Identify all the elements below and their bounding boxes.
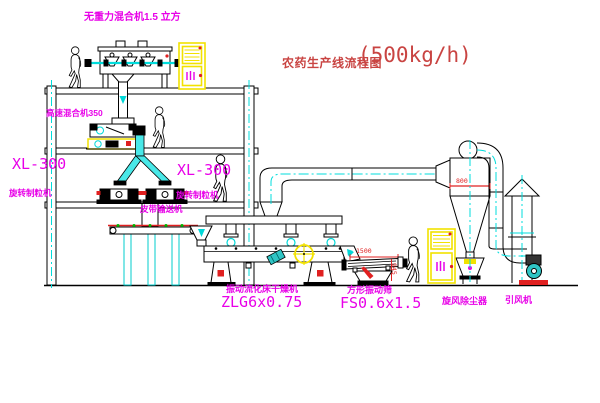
process-flow-drawing: 农药生产线流程图 (500kg/h) 无重力混合机1.5 立方 高速混合机350… [0, 0, 600, 403]
label-belt-conveyor: 皮带输送机 [140, 205, 183, 214]
exhaust-duct [260, 160, 450, 204]
label-granulator-left-name: 旋转制粒机 [9, 189, 52, 198]
label-granulator-mid-name: 旋转制粒机 [176, 191, 219, 200]
label-gravity-free-mixer: 无重力混合机1.5 立方 [84, 13, 181, 23]
gravity-free-mixer [85, 41, 182, 118]
worker-figure [407, 237, 420, 282]
cyclone-dust-collector [450, 140, 490, 284]
induced-draft-fan [519, 255, 548, 285]
control-cabinet-ground [428, 229, 455, 283]
belt-conveyor [108, 224, 198, 285]
label-high-speed-mixer: 高速混合机350 [46, 109, 103, 118]
fluid-bed-dryer [190, 202, 360, 286]
dimension-sieve-length: 1500 [356, 248, 372, 255]
label-cyclone: 旋风除尘器 [442, 297, 487, 306]
label-dryer-model: ZLG6x0.75 [221, 295, 302, 310]
control-cabinet-roof [179, 43, 205, 89]
drawing-title-capacity: (500kg/h) [358, 45, 472, 66]
label-granulator-left-model: XL-300 [12, 157, 66, 172]
label-fan: 引风机 [505, 296, 532, 305]
rotary-granulator-left [97, 189, 143, 204]
label-granulator-mid-model: XL-300 [177, 163, 231, 178]
dimension-cyclone-inlet: 800 [456, 178, 468, 185]
worker-figure [153, 107, 165, 148]
label-sieve-model: FS0.6x1.5 [340, 296, 421, 311]
worker-figure [69, 47, 81, 88]
dimension-sieve-height: 945 [391, 263, 398, 275]
